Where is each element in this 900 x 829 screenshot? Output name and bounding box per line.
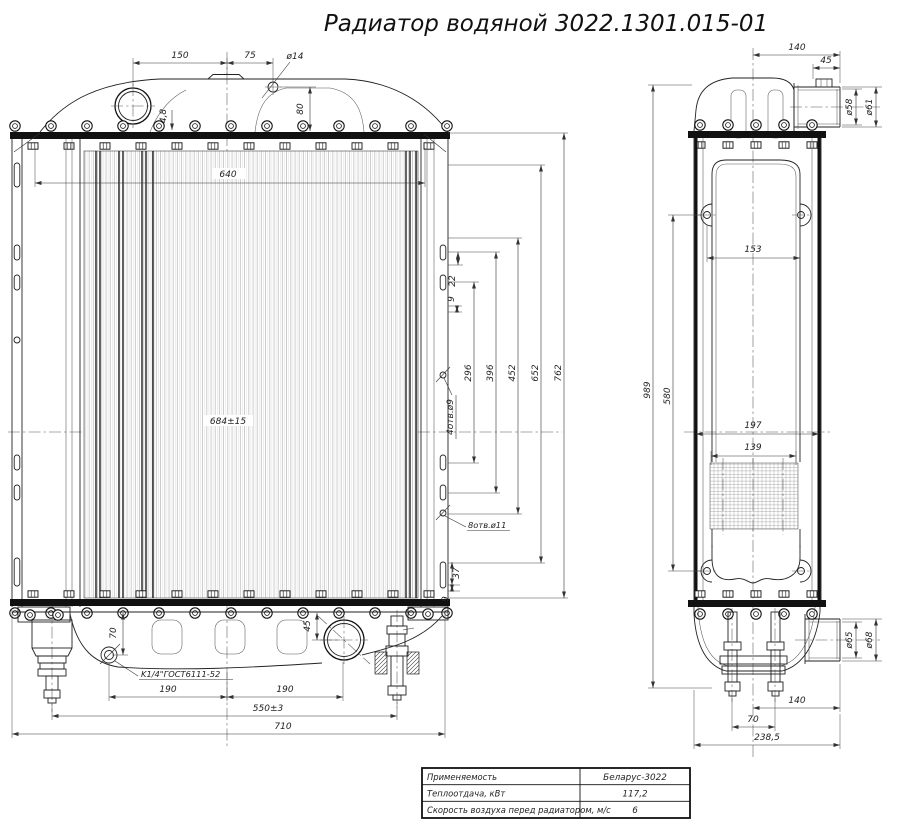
front-top-tank [40,62,448,132]
spec-row-value-0: Беларус-3022 [603,773,667,783]
dim-150: 150 [171,51,188,61]
dim-396: 396 [486,364,496,381]
dim-238-5: 238,5 [754,733,780,743]
side-dimensions: 140 45 ø58 ø61 989 580 153 [643,43,882,749]
dim-140-bottom: 140 [788,696,805,706]
front-bottom-tank [12,607,448,703]
side-centerlines [684,48,880,758]
label-dia65: ø65 [845,631,855,649]
dim-45-top: 45 [820,56,832,66]
dim-684: 684±15 [210,417,246,427]
dim-550: 550±3 [253,704,284,714]
dim-9-upper: 9 [447,296,457,302]
dim-296: 296 [464,364,474,381]
dim-580: 580 [663,387,673,404]
side-top-tank [694,78,840,138]
label-4-holes-dia9: 4отв.ø9 [446,399,456,435]
drain-boss [100,644,120,664]
dim-75: 75 [244,51,256,61]
drawing-sheet: Радиатор водяной 3022.1301.015-01 [0,0,900,829]
dim-139: 139 [744,443,761,453]
label-8-holes-dia11: 8отв.ø11 [468,520,506,530]
dim-190-left: 190 [159,685,176,695]
label-drain-thread: K1/4"ГОСТ6111-52 [141,669,220,679]
dim-22: 22 [448,275,458,287]
stud-right [767,612,784,696]
dim-762: 762 [554,364,564,381]
dim-710: 710 [274,722,291,732]
dim-140-top: 140 [788,43,805,53]
label-dia14: ø14 [286,52,304,62]
dim-153: 153 [744,245,761,255]
side-bottom-tank [694,607,840,696]
label-dia68: ø68 [865,631,875,649]
dim-45: 45 [303,620,313,632]
dim-197: 197 [744,421,761,431]
drawing-title: Радиатор водяной 3022.1301.015-01 [324,11,768,37]
front-view: 150 75 ø14 80 4,8 640 684±15 [8,51,568,748]
side-frame [694,138,821,607]
fin-block [710,458,798,535]
dim-9-lower: 9 [441,596,451,602]
dim-989: 989 [643,381,653,398]
label-dia58: ø58 [845,98,855,116]
dim-37: 37 [452,567,462,579]
spec-row-value-1: 117,2 [622,790,648,800]
dim-70: 70 [109,627,119,639]
dim-452: 452 [508,364,518,381]
stud-left [724,612,741,696]
dim-70-bottom: 70 [747,715,759,725]
spec-row-value-2: 6 [632,806,638,816]
radiator-core [84,151,418,598]
spec-table: Применяемость Беларус-3022 Теплоотдача, … [422,768,690,818]
spec-row-label-0: Применяемость [427,772,497,782]
outlet-pipe-side [805,614,840,664]
dim-640: 640 [219,170,236,180]
fan-shroud-lower [698,529,811,583]
dim-190-right: 190 [276,685,293,695]
dim-80: 80 [296,103,306,115]
dim-4-8: 4,8 [159,109,169,124]
spec-row-label-2: Скорость воздуха перед радиатором, м/с [427,805,611,815]
label-dia61: ø61 [865,99,875,117]
spec-row-label-1: Теплоотдача, кВт [427,789,506,799]
side-view: 140 45 ø58 ø61 989 580 153 [643,43,882,758]
front-top-flange [10,121,452,149]
fan-shroud-upper [698,160,811,462]
dim-652: 652 [531,364,541,381]
